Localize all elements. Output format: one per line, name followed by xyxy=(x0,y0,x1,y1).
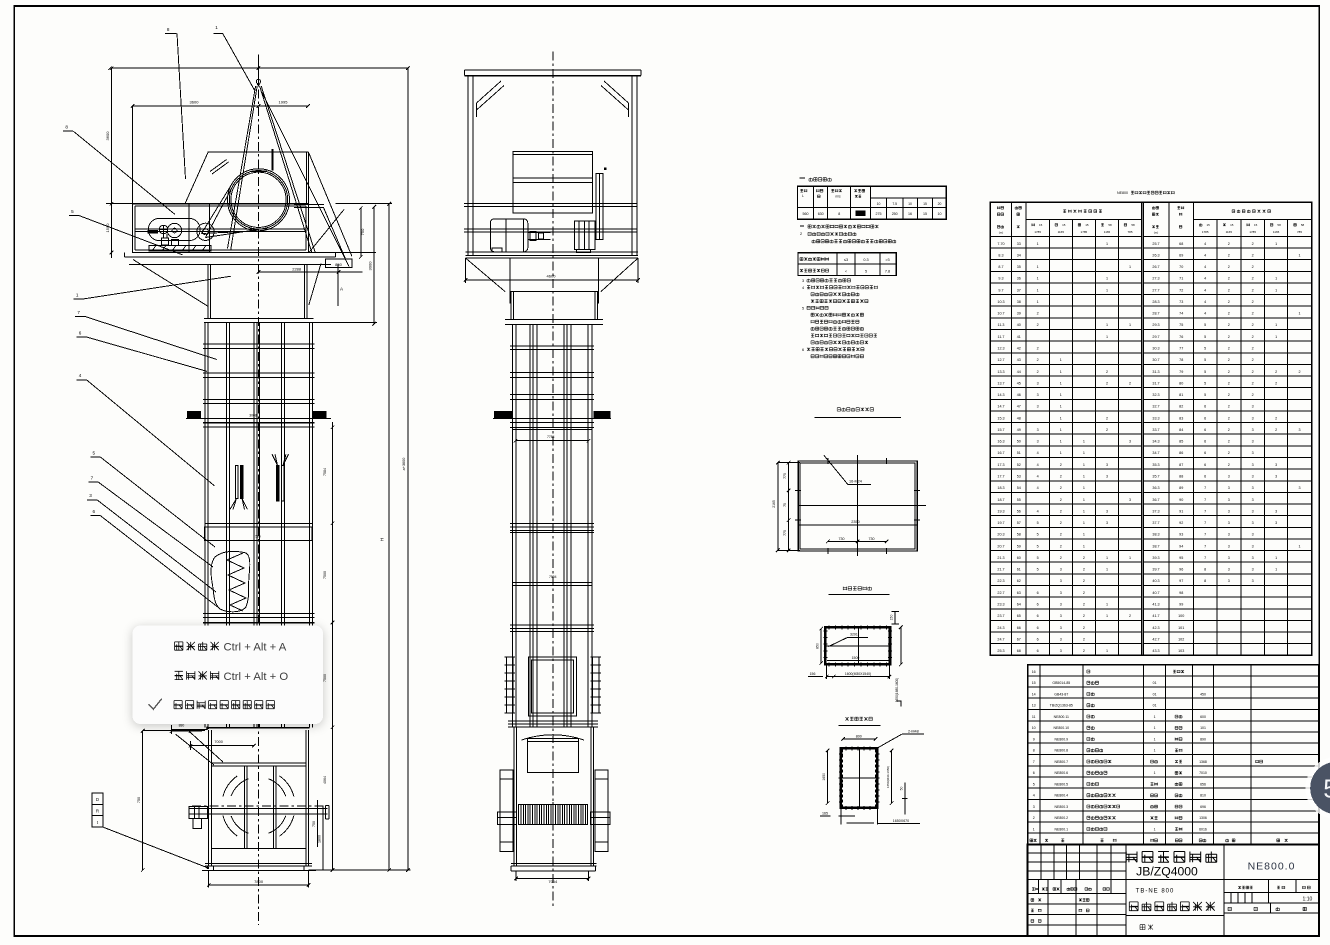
svg-text:14: 14 xyxy=(1032,692,1036,696)
svg-text:29.3: 29.3 xyxy=(1152,323,1159,327)
svg-text:6: 6 xyxy=(1204,451,1206,455)
svg-text:18.7: 18.7 xyxy=(997,498,1004,502)
svg-text:3600: 3600 xyxy=(105,131,110,141)
svg-text:41: 41 xyxy=(1017,335,1021,339)
svg-text:6: 6 xyxy=(79,330,82,335)
svg-text:34: 34 xyxy=(1017,253,1021,257)
svg-text:7: 7 xyxy=(1033,760,1035,764)
svg-text:53: 53 xyxy=(1017,475,1021,479)
svg-text:58: 58 xyxy=(1017,533,1021,537)
svg-text:810: 810 xyxy=(1200,794,1206,798)
svg-text:GB5014-85: GB5014-85 xyxy=(1052,681,1070,685)
svg-text:71: 71 xyxy=(1179,277,1183,281)
svg-text:3: 3 xyxy=(1252,416,1254,420)
svg-text:77: 77 xyxy=(1179,347,1183,351)
svg-text:m/s: m/s xyxy=(835,195,841,199)
svg-text:2: 2 xyxy=(1228,440,1230,444)
svg-text:585: 585 xyxy=(255,535,261,539)
svg-text:7800: 7800 xyxy=(254,879,264,884)
svg-text:1: 1 xyxy=(1106,288,1108,292)
svg-text:1: 1 xyxy=(1154,771,1156,775)
svg-text:8: 8 xyxy=(1204,579,1206,583)
svg-text:80: 80 xyxy=(1179,381,1183,385)
svg-text:3: 3 xyxy=(1060,591,1062,595)
svg-text:7584: 7584 xyxy=(323,468,327,476)
svg-text:9.3: 9.3 xyxy=(998,277,1003,281)
svg-text:2: 2 xyxy=(1228,405,1230,409)
svg-text:NE800.8: NE800.8 xyxy=(1054,749,1068,753)
svg-text:7.70: 7.70 xyxy=(997,242,1004,246)
svg-text:630: 630 xyxy=(818,212,824,216)
svg-text:79: 79 xyxy=(1179,370,1183,374)
svg-text:2: 2 xyxy=(1037,358,1039,362)
svg-text:3: 3 xyxy=(1037,381,1039,385)
svg-text:1165: 1165 xyxy=(1226,230,1233,234)
svg-text:7: 7 xyxy=(1204,498,1206,502)
svg-text:NE800.3: NE800.3 xyxy=(1054,805,1068,809)
svg-text:36.7: 36.7 xyxy=(1152,498,1159,502)
svg-text:3: 3 xyxy=(1106,509,1108,513)
svg-text:27.7: 27.7 xyxy=(1152,288,1159,292)
svg-text:20: 20 xyxy=(938,202,942,206)
svg-text:1: 1 xyxy=(1129,265,1131,269)
svg-text:2: 2 xyxy=(1106,370,1108,374)
svg-text:7: 7 xyxy=(1204,486,1206,490)
svg-text:8.7: 8.7 xyxy=(998,265,1003,269)
svg-text:10.3: 10.3 xyxy=(997,300,1004,304)
svg-text:3: 3 xyxy=(1275,475,1277,479)
svg-text:1165: 1165 xyxy=(1104,230,1111,234)
svg-text:52: 52 xyxy=(1017,463,1021,467)
svg-text:3008: 3008 xyxy=(249,414,257,418)
svg-text:7784: 7784 xyxy=(547,435,555,439)
svg-text:3: 3 xyxy=(1060,649,1062,653)
svg-text:3: 3 xyxy=(1252,568,1254,572)
svg-text:1: 1 xyxy=(1083,544,1085,548)
svg-text:6: 6 xyxy=(93,509,96,514)
svg-text:14.7: 14.7 xyxy=(997,405,1004,409)
svg-text:8: 8 xyxy=(1033,749,1035,753)
svg-text:9.7: 9.7 xyxy=(998,288,1003,292)
svg-text:15: 15 xyxy=(923,212,927,216)
svg-text:2165: 2165 xyxy=(772,500,776,508)
svg-text:01: 01 xyxy=(1153,704,1157,708)
svg-text:58: 58 xyxy=(1131,223,1135,227)
svg-text:1: 1 xyxy=(1083,486,1085,490)
svg-text:16.3: 16.3 xyxy=(997,440,1004,444)
svg-text:(m): (m) xyxy=(999,231,1004,235)
svg-text:55: 55 xyxy=(1017,498,1021,502)
svg-text:785: 785 xyxy=(1297,230,1302,234)
svg-text:3: 3 xyxy=(1106,475,1108,479)
svg-text:3: 3 xyxy=(1228,556,1230,560)
svg-text:6: 6 xyxy=(1037,649,1039,653)
svg-text:2: 2 xyxy=(1252,277,1254,281)
svg-text:4: 4 xyxy=(802,286,804,290)
svg-text:NE800.7: NE800.7 xyxy=(1054,760,1068,764)
svg-text:8: 8 xyxy=(1204,568,1206,572)
svg-text:93: 93 xyxy=(1179,533,1183,537)
svg-text:7.8: 7.8 xyxy=(885,269,890,273)
svg-text:11.3: 11.3 xyxy=(998,323,1005,327)
svg-text:2: 2 xyxy=(1298,370,1300,374)
svg-text:39.3: 39.3 xyxy=(1152,556,1159,560)
svg-text:3: 3 xyxy=(1037,393,1039,397)
svg-text:1: 1 xyxy=(1083,463,1085,467)
svg-text:6: 6 xyxy=(1204,463,1206,467)
svg-text:1500: 1500 xyxy=(852,656,860,660)
svg-text:850: 850 xyxy=(816,643,820,649)
svg-text:1785: 1785 xyxy=(1202,230,1209,234)
svg-text:JB/ZQ4000: JB/ZQ4000 xyxy=(1136,865,1198,879)
svg-text:10: 10 xyxy=(877,202,881,206)
svg-text:2: 2 xyxy=(1083,626,1085,630)
svg-text:40.3: 40.3 xyxy=(1152,579,1159,583)
svg-text:2: 2 xyxy=(1228,381,1230,385)
svg-text:1: 1 xyxy=(1060,416,1062,420)
svg-text:3: 3 xyxy=(1252,579,1254,583)
svg-text:(m): (m) xyxy=(1154,231,1159,235)
svg-text:1: 1 xyxy=(1106,556,1108,560)
svg-text:R: R xyxy=(96,808,99,813)
svg-text:2: 2 xyxy=(1228,323,1230,327)
svg-text:7: 7 xyxy=(77,310,80,315)
svg-text:a+3600: a+3600 xyxy=(402,458,406,471)
svg-text:NE800.1: NE800.1 xyxy=(1054,827,1068,831)
svg-text:51: 51 xyxy=(1017,451,1021,455)
svg-text:Ctrl + Alt + A: Ctrl + Alt + A xyxy=(224,642,287,654)
svg-text:97: 97 xyxy=(1179,579,1183,583)
svg-text:4: 4 xyxy=(1204,312,1206,316)
svg-text:3: 3 xyxy=(1252,521,1254,525)
svg-text:94: 94 xyxy=(1179,544,1183,548)
svg-text:15: 15 xyxy=(1230,223,1234,227)
svg-text:3: 3 xyxy=(1252,544,1254,548)
svg-text:D: D xyxy=(96,797,99,802)
svg-text:54: 54 xyxy=(1017,486,1021,490)
svg-text:2: 2 xyxy=(1037,347,1039,351)
svg-text:2: 2 xyxy=(1228,300,1230,304)
svg-text:2: 2 xyxy=(1252,242,1254,246)
svg-text:3: 3 xyxy=(1228,509,1230,513)
svg-text:750: 750 xyxy=(137,797,141,803)
svg-text:31.7: 31.7 xyxy=(1152,381,1159,385)
svg-text:75: 75 xyxy=(783,503,787,507)
svg-text:59: 59 xyxy=(1017,544,1021,548)
svg-text:NE800.2: NE800.2 xyxy=(1054,816,1068,820)
svg-text:NE800.4: NE800.4 xyxy=(1054,794,1068,798)
svg-text:38: 38 xyxy=(1017,300,1021,304)
svg-text:4: 4 xyxy=(1037,463,1039,467)
svg-text:6: 6 xyxy=(1204,416,1206,420)
svg-text:20.7: 20.7 xyxy=(997,544,1004,548)
svg-text:44: 44 xyxy=(1017,370,1021,374)
svg-text:49: 49 xyxy=(1017,428,1021,432)
svg-text:3: 3 xyxy=(1060,603,1062,607)
svg-text:35: 35 xyxy=(1017,265,1021,269)
svg-text:2: 2 xyxy=(800,232,802,236)
svg-text:6: 6 xyxy=(1037,626,1039,630)
svg-text:24.7: 24.7 xyxy=(997,637,1004,641)
svg-text:3: 3 xyxy=(1060,614,1062,618)
svg-text:730: 730 xyxy=(839,537,845,541)
svg-text:1: 1 xyxy=(1037,300,1039,304)
svg-text:40.7: 40.7 xyxy=(1152,591,1159,595)
svg-text:13.7: 13.7 xyxy=(997,381,1004,385)
svg-text:1: 1 xyxy=(1106,242,1108,246)
svg-text:2: 2 xyxy=(1060,486,1062,490)
svg-text:450: 450 xyxy=(1200,692,1206,696)
svg-text:2: 2 xyxy=(1252,335,1254,339)
svg-text:45: 45 xyxy=(1017,381,1021,385)
svg-text:20.3: 20.3 xyxy=(997,533,1004,537)
svg-text:800: 800 xyxy=(856,734,862,738)
svg-text:7000: 7000 xyxy=(214,740,222,744)
svg-text:1: 1 xyxy=(1275,556,1277,560)
svg-text:2: 2 xyxy=(1252,347,1254,351)
svg-text:775: 775 xyxy=(783,473,787,479)
svg-text:3: 3 xyxy=(1252,486,1254,490)
svg-text:NE800.11: NE800.11 xyxy=(1054,715,1069,719)
svg-text:4: 4 xyxy=(1204,288,1206,292)
svg-text:5: 5 xyxy=(865,269,867,273)
svg-text:2: 2 xyxy=(1228,347,1230,351)
svg-text:3: 3 xyxy=(1275,521,1277,525)
svg-text:1165: 1165 xyxy=(1273,230,1280,234)
svg-text:750: 750 xyxy=(312,821,316,827)
svg-text:2: 2 xyxy=(1060,463,1062,467)
svg-text:696: 696 xyxy=(1200,805,1206,809)
svg-text:6: 6 xyxy=(1037,637,1039,641)
svg-text:01: 01 xyxy=(1153,692,1157,696)
svg-text:33.7: 33.7 xyxy=(1152,428,1159,432)
svg-text:3: 3 xyxy=(1129,498,1131,502)
svg-text:8: 8 xyxy=(65,125,68,130)
svg-text:3: 3 xyxy=(1037,428,1039,432)
svg-text:3: 3 xyxy=(1037,440,1039,444)
svg-text:2: 2 xyxy=(1060,475,1062,479)
svg-text:2: 2 xyxy=(1228,393,1230,397)
svg-text:3: 3 xyxy=(1228,544,1230,548)
svg-text:1: 1 xyxy=(1083,533,1085,537)
svg-text:2: 2 xyxy=(1252,381,1254,385)
svg-text:6: 6 xyxy=(1204,405,1206,409)
svg-text:600: 600 xyxy=(1200,715,1206,719)
svg-text:3: 3 xyxy=(802,279,804,283)
svg-text:4: 4 xyxy=(79,373,82,378)
svg-text:28.3: 28.3 xyxy=(1152,300,1159,304)
svg-text:1: 1 xyxy=(1033,827,1035,831)
svg-text:63: 63 xyxy=(1017,591,1021,595)
svg-text:850: 850 xyxy=(335,262,342,267)
svg-text:2: 2 xyxy=(1106,381,1108,385)
svg-text:15: 15 xyxy=(1039,223,1043,227)
svg-text:19.7: 19.7 xyxy=(997,521,1004,525)
svg-text:1: 1 xyxy=(1060,393,1062,397)
svg-text:2: 2 xyxy=(1252,323,1254,327)
svg-text:3291: 3291 xyxy=(850,633,858,637)
svg-text:3: 3 xyxy=(1033,805,1035,809)
svg-text:0.3: 0.3 xyxy=(863,258,868,262)
svg-text:11: 11 xyxy=(1032,715,1036,719)
svg-text:2: 2 xyxy=(1228,358,1230,362)
svg-text:74: 74 xyxy=(1179,312,1183,316)
svg-text:10: 10 xyxy=(938,212,942,216)
svg-text:1600(M30X1540): 1600(M30X1540) xyxy=(845,672,871,676)
svg-text:43.3: 43.3 xyxy=(1152,649,1159,653)
svg-text:2: 2 xyxy=(1275,381,1277,385)
svg-text:2: 2 xyxy=(1275,416,1277,420)
svg-text:1: 1 xyxy=(1154,827,1156,831)
svg-text:NE800.6: NE800.6 xyxy=(1054,771,1068,775)
svg-text:7504: 7504 xyxy=(549,575,557,579)
svg-text:3: 3 xyxy=(1298,428,1300,432)
svg-text:58: 58 xyxy=(1108,223,1112,227)
svg-text:16: 16 xyxy=(908,212,912,216)
svg-text:7500: 7500 xyxy=(323,674,327,682)
svg-text:1: 1 xyxy=(1060,440,1062,444)
svg-text:1: 1 xyxy=(1060,370,1062,374)
svg-text:5: 5 xyxy=(71,209,74,214)
svg-text:3000: 3000 xyxy=(368,261,373,271)
svg-text:GB43-87: GB43-87 xyxy=(1054,692,1068,696)
svg-text:1: 1 xyxy=(1037,277,1039,281)
svg-text:1800: 1800 xyxy=(318,835,322,843)
svg-text:24.3: 24.3 xyxy=(997,626,1004,630)
svg-text:1: 1 xyxy=(1060,358,1062,362)
svg-text:98: 98 xyxy=(1179,591,1183,595)
svg-text:1: 1 xyxy=(1154,715,1156,719)
svg-text:3: 3 xyxy=(1252,463,1254,467)
svg-text:3: 3 xyxy=(1275,463,1277,467)
svg-text:1: 1 xyxy=(1154,749,1156,753)
svg-text:69: 69 xyxy=(1179,253,1183,257)
svg-text:1: 1 xyxy=(1275,568,1277,572)
svg-text:100: 100 xyxy=(1178,614,1184,618)
svg-text:3: 3 xyxy=(1106,521,1108,525)
svg-text:1: 1 xyxy=(1037,265,1039,269)
svg-text:5: 5 xyxy=(1323,774,1330,804)
svg-text:4: 4 xyxy=(1204,300,1206,304)
svg-text:1: 1 xyxy=(1275,242,1277,246)
svg-text:2: 2 xyxy=(1060,533,1062,537)
svg-text:750: 750 xyxy=(360,228,365,235)
svg-text:1785: 1785 xyxy=(1081,230,1088,234)
svg-text:4: 4 xyxy=(1037,475,1039,479)
svg-text:101: 101 xyxy=(1178,626,1184,630)
svg-text:42: 42 xyxy=(1017,347,1021,351)
svg-text:57: 57 xyxy=(1017,521,1021,525)
svg-text:81: 81 xyxy=(1179,393,1183,397)
svg-text:4: 4 xyxy=(1204,242,1206,246)
svg-text:250: 250 xyxy=(892,212,898,216)
svg-text:16: 16 xyxy=(1032,670,1036,674)
svg-text:2: 2 xyxy=(1129,614,1131,618)
svg-text:8: 8 xyxy=(167,27,170,32)
svg-text:1: 1 xyxy=(1106,614,1108,618)
svg-text:785: 785 xyxy=(1127,230,1132,234)
svg-text:2: 2 xyxy=(1275,370,1277,374)
svg-text:3: 3 xyxy=(1228,498,1230,502)
svg-text:3: 3 xyxy=(1129,440,1131,444)
svg-text:43: 43 xyxy=(1017,358,1021,362)
svg-text:5: 5 xyxy=(1037,533,1039,537)
svg-text:92: 92 xyxy=(1179,521,1183,525)
svg-text:23.3: 23.3 xyxy=(997,603,1004,607)
svg-text:2: 2 xyxy=(1252,265,1254,269)
svg-text:156: 156 xyxy=(810,672,816,676)
svg-text:1: 1 xyxy=(1060,451,1062,455)
svg-text:1: 1 xyxy=(1083,451,1085,455)
svg-text:28.7: 28.7 xyxy=(1152,312,1159,316)
svg-text:37: 37 xyxy=(1017,288,1021,292)
svg-text:9: 9 xyxy=(1033,737,1035,741)
svg-text:7: 7 xyxy=(1204,521,1206,525)
svg-text:56: 56 xyxy=(1017,509,1021,513)
svg-text:37.3: 37.3 xyxy=(1152,509,1159,513)
svg-text:150: 150 xyxy=(889,615,893,621)
svg-text:3: 3 xyxy=(1228,533,1230,537)
svg-text:4: 4 xyxy=(1204,265,1206,269)
svg-text:2: 2 xyxy=(1037,370,1039,374)
svg-text:1650X670: 1650X670 xyxy=(893,819,909,823)
svg-text:1: 1 xyxy=(1083,521,1085,525)
svg-text:6: 6 xyxy=(802,348,804,352)
svg-text:NE800: NE800 xyxy=(1117,191,1128,195)
svg-text:15: 15 xyxy=(1254,223,1258,227)
svg-text:2: 2 xyxy=(1083,614,1085,618)
svg-text:10.7: 10.7 xyxy=(997,312,1004,316)
svg-text:36.3: 36.3 xyxy=(1152,486,1159,490)
svg-text:2: 2 xyxy=(1033,816,1035,820)
svg-text:83: 83 xyxy=(1179,416,1183,420)
svg-text:4: 4 xyxy=(1204,253,1206,257)
svg-text:70: 70 xyxy=(1179,265,1183,269)
svg-text:1: 1 xyxy=(1129,556,1131,560)
svg-text:2: 2 xyxy=(1228,463,1230,467)
svg-text:1500: 1500 xyxy=(105,223,110,233)
svg-text:NE800.5: NE800.5 xyxy=(1054,782,1068,786)
svg-text:5: 5 xyxy=(1033,782,1035,786)
svg-text:3: 3 xyxy=(1275,509,1277,513)
svg-text:1: 1 xyxy=(1060,428,1062,432)
svg-text:5: 5 xyxy=(1037,521,1039,525)
svg-text:3: 3 xyxy=(1252,440,1254,444)
svg-text:99: 99 xyxy=(1179,603,1183,607)
svg-text:3: 3 xyxy=(1228,475,1230,479)
svg-text:6: 6 xyxy=(1204,428,1206,432)
svg-text:3: 3 xyxy=(1060,579,1062,583)
svg-text:30.3: 30.3 xyxy=(1152,347,1159,351)
svg-text:2: 2 xyxy=(1083,556,1085,560)
svg-text:2: 2 xyxy=(1252,300,1254,304)
svg-text:68: 68 xyxy=(1179,242,1183,246)
svg-text:39: 39 xyxy=(1017,312,1021,316)
svg-text:15: 15 xyxy=(1207,223,1211,227)
svg-text:2288: 2288 xyxy=(292,266,302,271)
svg-text:TB/ZQ1363-85: TB/ZQ1363-85 xyxy=(1050,704,1073,708)
svg-text:1: 1 xyxy=(1298,544,1300,548)
svg-text:5: 5 xyxy=(1204,347,1206,351)
svg-text:165: 165 xyxy=(822,811,828,815)
svg-text:50: 50 xyxy=(1017,440,1021,444)
svg-text:TB-NE 800: TB-NE 800 xyxy=(1136,888,1175,894)
svg-text:1: 1 xyxy=(1298,253,1300,257)
svg-text:15: 15 xyxy=(923,202,927,206)
svg-text:2: 2 xyxy=(1228,277,1230,281)
svg-text:NE800.0: NE800.0 xyxy=(1248,861,1296,873)
svg-text:01: 01 xyxy=(1153,681,1157,685)
